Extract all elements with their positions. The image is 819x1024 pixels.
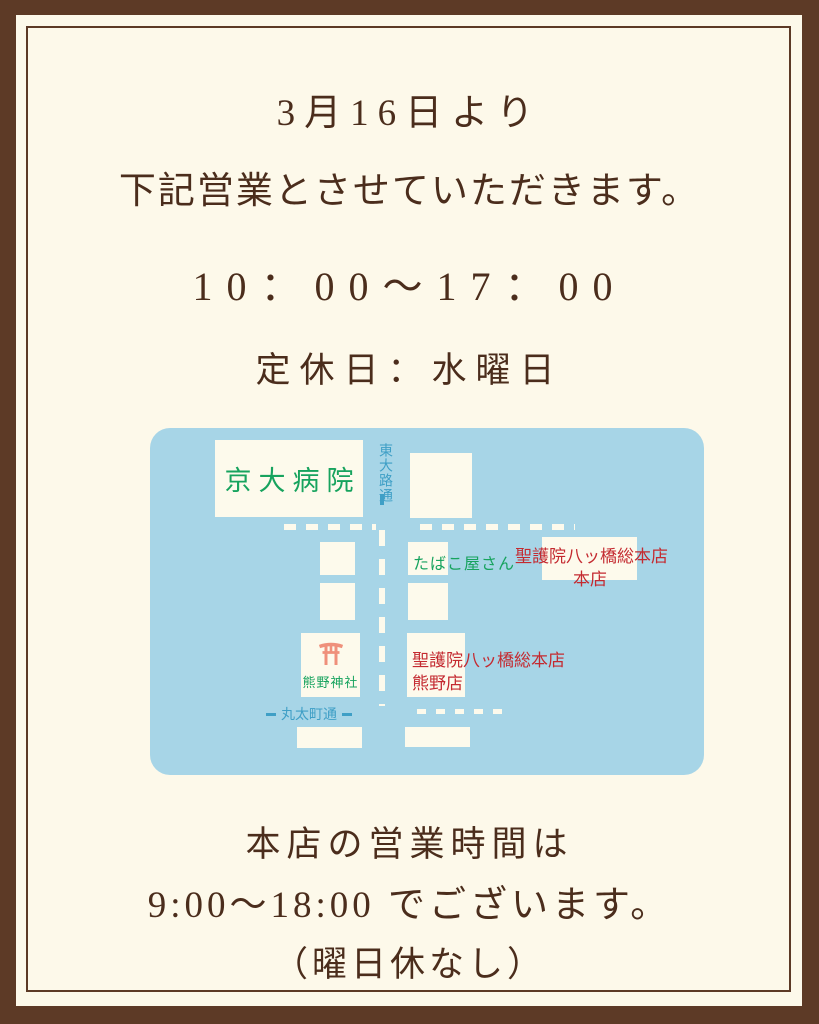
footer-line2: 9:00～18:00 でございます。	[0, 874, 819, 928]
location-map: 京大病院 東大路通 たばこ屋さん 聖護院八ッ橋総本店 本店 熊野神社	[150, 428, 704, 775]
kumano-store-branch: 熊野店	[412, 672, 565, 695]
tobacco-shop-label: たばこ屋さん	[413, 550, 515, 574]
road-dashes-left	[284, 524, 376, 530]
map-block	[405, 727, 470, 747]
map-block	[410, 453, 472, 518]
map-block-shrine: 熊野神社	[301, 633, 360, 697]
street-name-marutamachi: 丸太町通	[281, 704, 337, 724]
street-name-marutamachi-row: 丸太町通	[266, 704, 352, 724]
footer-line3: （曜日休なし）	[0, 936, 819, 987]
street-dash	[380, 494, 384, 505]
honten-store-branch: 本店	[515, 568, 665, 591]
shrine-label: 熊野神社	[302, 672, 358, 691]
road-tick	[342, 713, 352, 716]
street-name-higashioji: 東大路通	[374, 443, 394, 503]
road-dashes-right	[420, 524, 575, 530]
map-block-hospital: 京大病院	[215, 440, 363, 517]
notice-announce-line: 下記営業とさせていただきます。	[0, 160, 819, 214]
notice-poster: 3月16日より 下記営業とさせていただきます。 10：00～17：00 定休日：…	[0, 0, 819, 1024]
hospital-label: 京大病院	[218, 459, 361, 498]
map-block	[320, 583, 355, 620]
honten-store-label: 聖護院八ッ橋総本店 本店	[515, 545, 665, 591]
torii-icon	[317, 639, 345, 667]
notice-date-line: 3月16日より	[0, 82, 819, 136]
footer-line1: 本店の営業時間は	[0, 816, 819, 867]
map-block	[297, 727, 362, 748]
road-dashes-right-bottom	[417, 709, 502, 714]
road-dashes-vertical	[379, 530, 385, 706]
business-hours: 10：00～17：00	[0, 254, 819, 312]
kumano-store-name: 聖護院八ッ橋総本店	[412, 649, 565, 672]
road-tick	[266, 713, 276, 716]
closed-day: 定休日：水曜日	[0, 342, 819, 393]
map-block	[320, 542, 355, 575]
honten-store-name: 聖護院八ッ橋総本店	[515, 545, 665, 568]
map-block	[408, 583, 448, 620]
kumano-store-label: 聖護院八ッ橋総本店 熊野店	[412, 649, 565, 695]
